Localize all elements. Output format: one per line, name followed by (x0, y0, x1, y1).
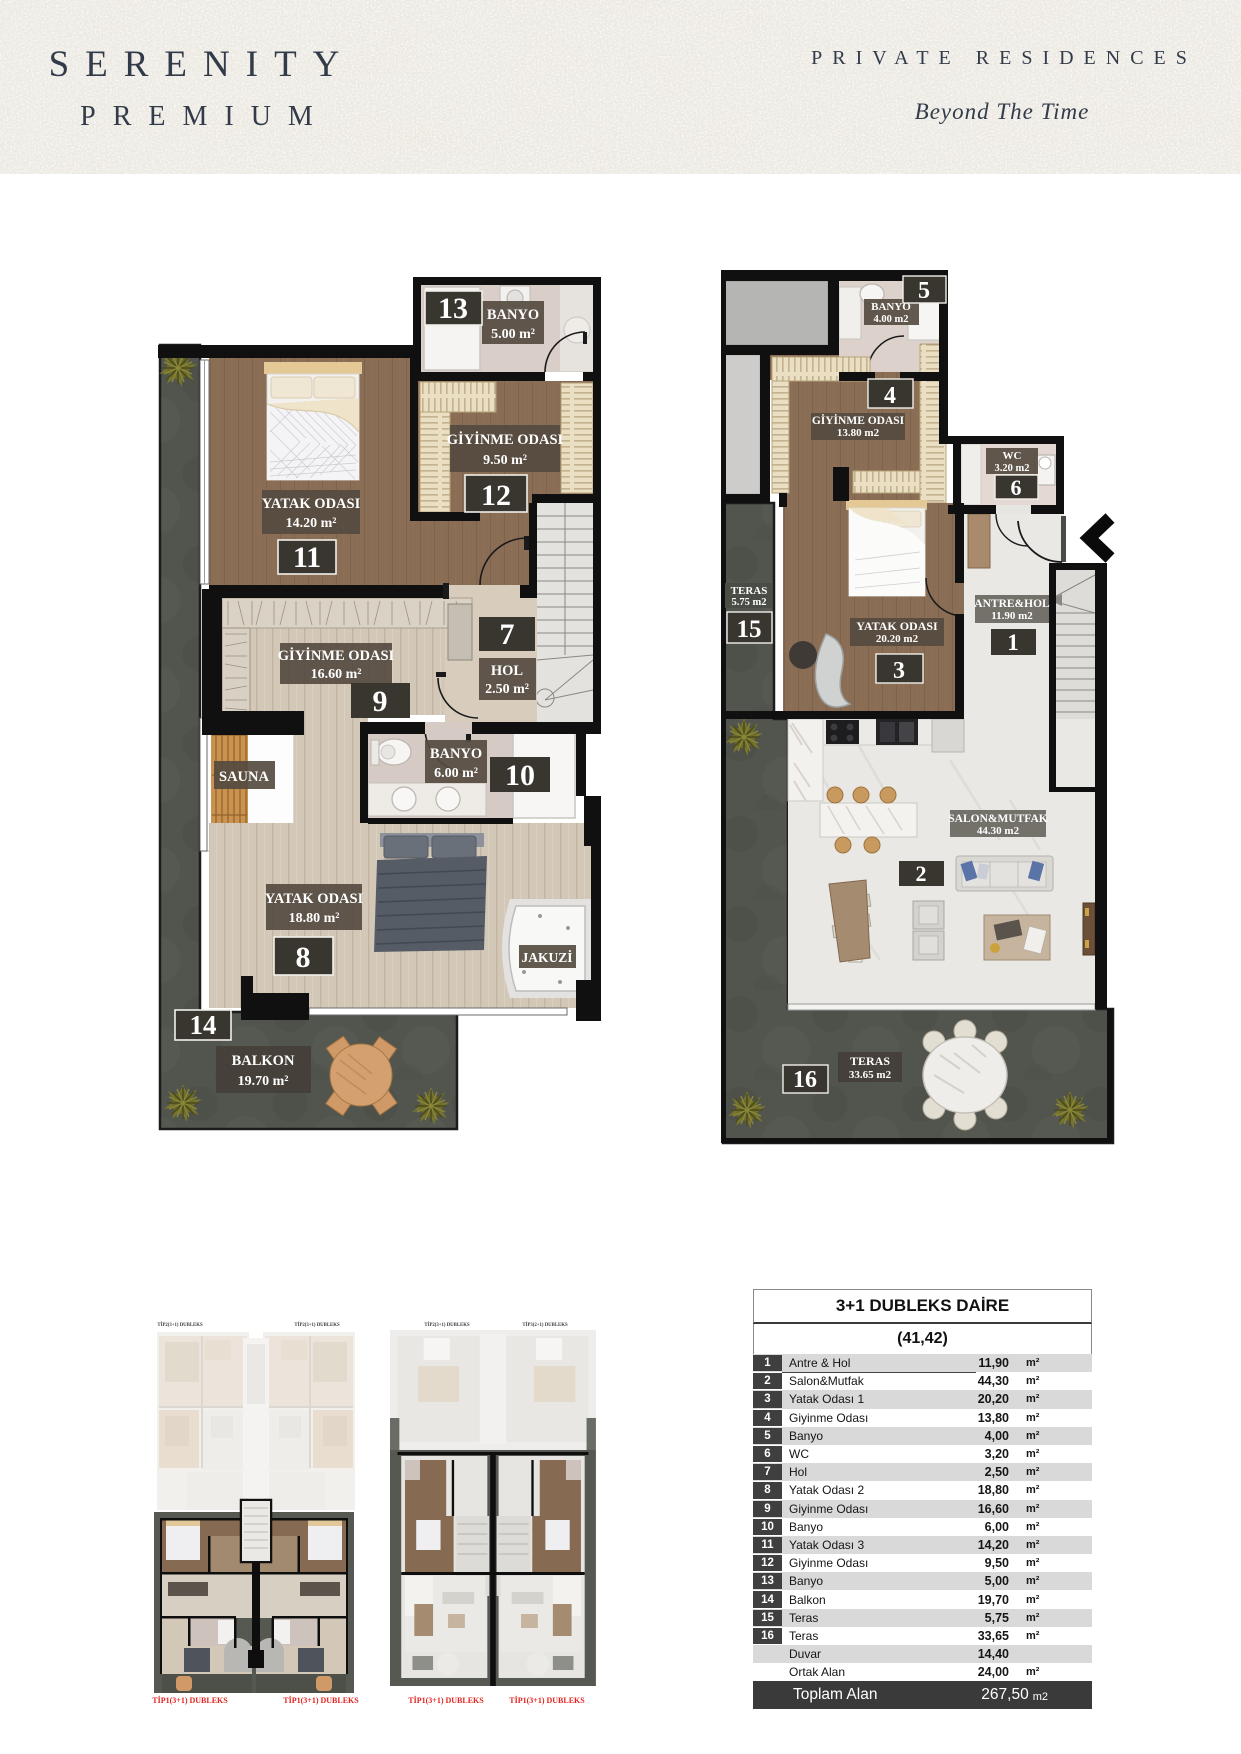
svg-text:10: 10 (505, 759, 535, 792)
svg-text:16: 16 (793, 1067, 817, 1093)
svg-text:13: 13 (438, 292, 468, 325)
svg-text:5: 5 (918, 278, 930, 304)
svg-text:19.70 m²: 19.70 m² (238, 1074, 289, 1089)
svg-text:TİP2(3+1) DUBLEKS: TİP2(3+1) DUBLEKS (424, 1322, 470, 1328)
svg-text:SALON&MUTFAK: SALON&MUTFAK (948, 813, 1048, 825)
svg-text:14: 14 (190, 1010, 217, 1040)
svg-text:15: 15 (737, 616, 762, 643)
svg-text:6: 6 (1011, 475, 1022, 500)
svg-text:13.80 m2: 13.80 m2 (837, 427, 880, 439)
svg-text:PRIVATE RESIDENCES: PRIVATE RESIDENCES (811, 47, 1197, 69)
svg-text:JAKUZİ: JAKUZİ (521, 950, 572, 965)
svg-text:4.00 m2: 4.00 m2 (874, 314, 909, 325)
svg-text:TİP3(2+1) DUBLEKS: TİP3(2+1) DUBLEKS (522, 1322, 568, 1328)
svg-text:11.90 m2: 11.90 m2 (991, 610, 1033, 622)
svg-text:44.30 m2: 44.30 m2 (977, 825, 1020, 837)
svg-text:14.20 m²: 14.20 m² (286, 516, 337, 531)
svg-text:PREMIUM: PREMIUM (80, 101, 330, 132)
svg-text:BANYO: BANYO (487, 307, 539, 323)
svg-text:4: 4 (884, 383, 896, 409)
svg-text:TİP1(3+1) DUBLEKS: TİP1(3+1) DUBLEKS (283, 1695, 359, 1705)
svg-text:11: 11 (293, 541, 321, 574)
svg-text:GİYİNME ODASI: GİYİNME ODASI (812, 413, 905, 427)
svg-text:9.50 m²: 9.50 m² (483, 453, 527, 468)
svg-text:SERENITY: SERENITY (49, 44, 356, 85)
svg-text:BANYO: BANYO (430, 746, 482, 762)
svg-text:TİP2(3+1) DUBLEKS: TİP2(3+1) DUBLEKS (294, 1322, 340, 1328)
svg-text:GİYİNME ODASI: GİYİNME ODASI (447, 431, 564, 448)
svg-text:12: 12 (481, 479, 511, 512)
svg-text:TİP1(3+1) DUBLEKS: TİP1(3+1) DUBLEKS (152, 1695, 228, 1705)
svg-text:16.60 m²: 16.60 m² (311, 667, 362, 682)
svg-text:5.75 m2: 5.75 m2 (732, 597, 767, 608)
svg-text:WC: WC (1003, 450, 1022, 462)
svg-text:3.20 m2: 3.20 m2 (995, 463, 1030, 474)
svg-text:TERAS: TERAS (850, 1054, 890, 1068)
svg-text:18.80 m²: 18.80 m² (289, 911, 340, 926)
svg-text:YATAK ODASI: YATAK ODASI (262, 496, 361, 512)
svg-text:TERAS: TERAS (731, 585, 768, 597)
svg-text:HOL: HOL (491, 663, 524, 679)
svg-text:1: 1 (1007, 630, 1019, 655)
svg-text:2.50 m²: 2.50 m² (485, 682, 529, 697)
svg-text:YATAK ODASI: YATAK ODASI (856, 619, 938, 633)
svg-text:9: 9 (373, 685, 388, 718)
svg-text:6.00 m²: 6.00 m² (434, 766, 478, 781)
svg-text:SAUNA: SAUNA (219, 769, 269, 785)
svg-text:33.65 m2: 33.65 m2 (849, 1069, 892, 1081)
svg-text:3: 3 (893, 658, 905, 684)
svg-text:2: 2 (916, 861, 927, 886)
svg-text:YATAK ODASI: YATAK ODASI (265, 891, 364, 907)
svg-text:7: 7 (500, 618, 515, 651)
svg-text:Beyond The Time: Beyond The Time (915, 99, 1090, 124)
svg-text:TİP1(3+1) DUBLEKS: TİP1(3+1) DUBLEKS (408, 1695, 484, 1705)
svg-text:GİYİNME ODASI: GİYİNME ODASI (278, 647, 395, 664)
svg-text:5.00 m²: 5.00 m² (491, 327, 535, 342)
svg-text:TİP1(3+1) DUBLEKS: TİP1(3+1) DUBLEKS (509, 1695, 585, 1705)
svg-text:8: 8 (296, 941, 311, 974)
svg-text:BALKON: BALKON (232, 1053, 295, 1069)
svg-text:TİP2(3+1) DUBLEKS: TİP2(3+1) DUBLEKS (157, 1322, 203, 1328)
svg-text:ANTRE&HOL: ANTRE&HOL (974, 598, 1050, 610)
svg-text:20.20 m2: 20.20 m2 (876, 633, 919, 645)
